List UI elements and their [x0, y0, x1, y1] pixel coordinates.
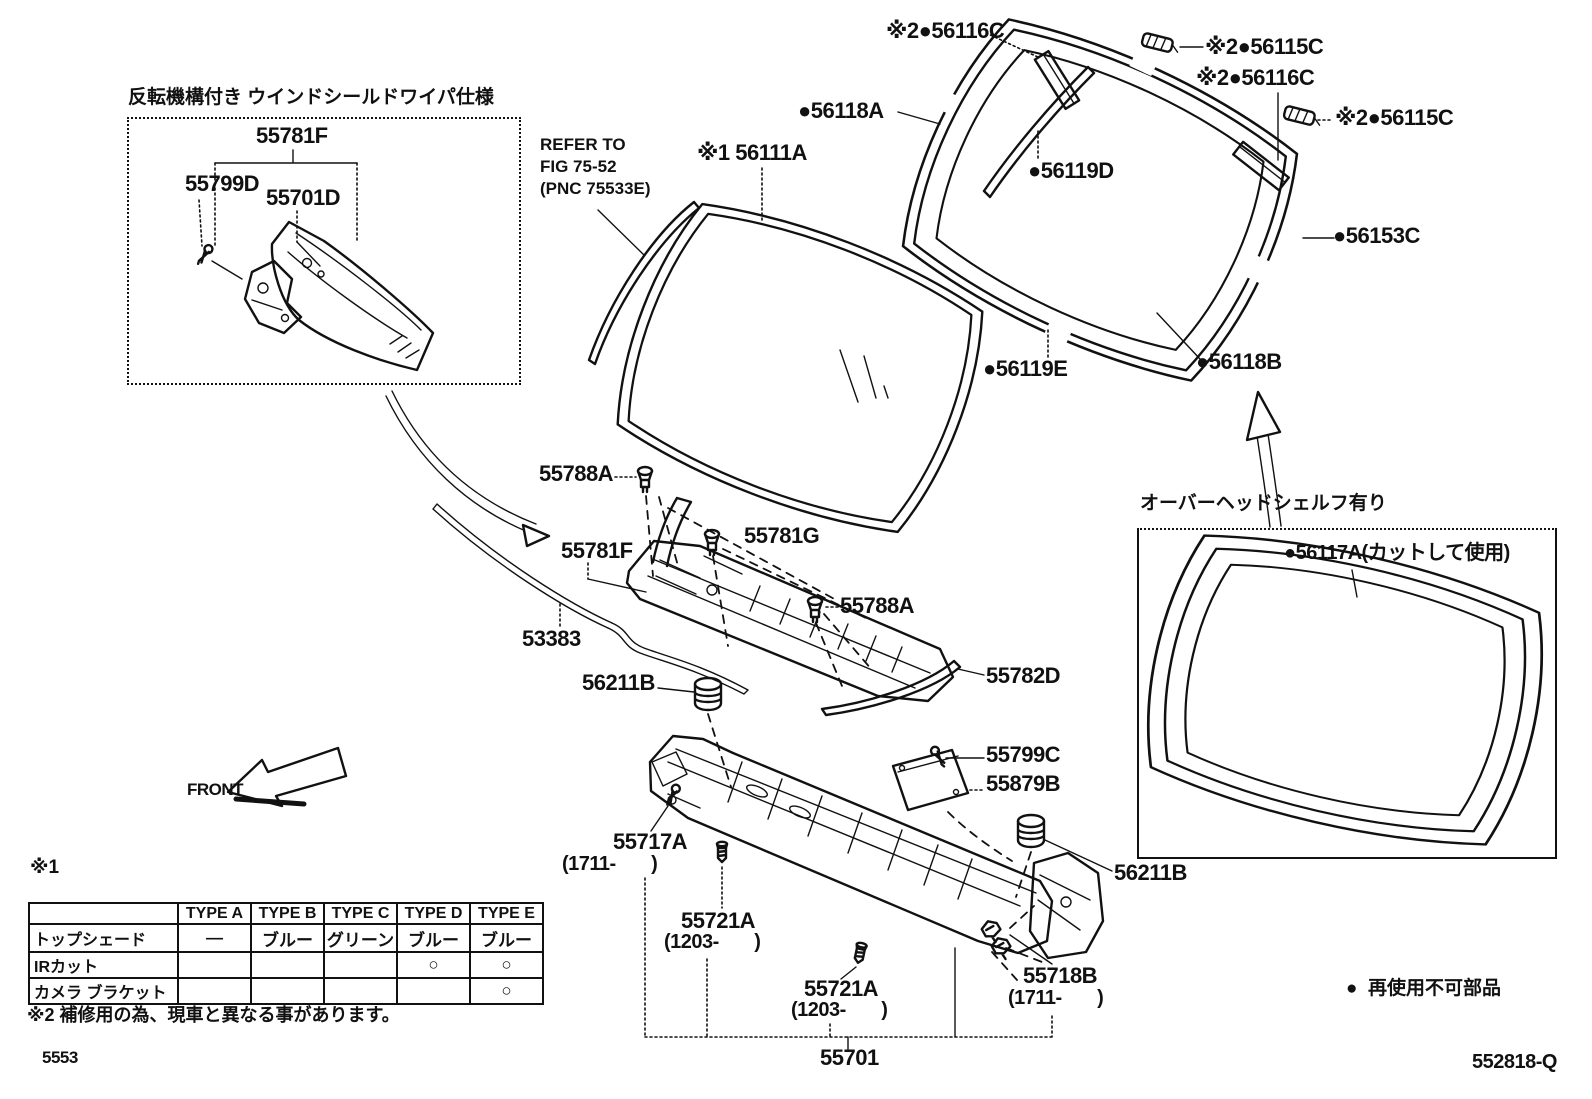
- cell: [324, 952, 397, 978]
- parts-diagram-page: 反転機構付き ウインドシールドワイパ仕様 55781F 55799D 55701…: [0, 0, 1592, 1099]
- row-label-camera-bracket: カメラ ブラケット: [29, 978, 178, 1004]
- part-label-55721a-1-date: (1203- ): [664, 932, 760, 953]
- note1-mark: ※1: [30, 858, 59, 878]
- cell: ブルー: [470, 924, 543, 952]
- cell: ○: [470, 978, 543, 1004]
- part-label-55717a: 55717A: [613, 830, 687, 853]
- table-row: カメラ ブラケット ○: [29, 978, 543, 1004]
- part-label-55701d: 55701D: [266, 186, 340, 209]
- wiper-box-pointer-arrow: [386, 391, 549, 546]
- cell: ―: [178, 924, 251, 952]
- part-label-56118b: ●56118B: [1196, 350, 1282, 373]
- cell: グリーン: [324, 924, 397, 952]
- windshield-glass-56111a: [589, 182, 1005, 554]
- part-label-55788a-1: 55788A: [539, 462, 613, 485]
- part-label-55788a-2: 55788A: [840, 594, 914, 617]
- table-header-type-e: TYPE E: [470, 903, 543, 924]
- part-label-55701: 55701: [820, 1046, 879, 1069]
- type-spec-table: TYPE A TYPE B TYPE C TYPE D TYPE E トップシェ…: [28, 902, 544, 1005]
- part-label-56111a: ※1 56111A: [697, 141, 807, 164]
- table-row: IRカット ○ ○: [29, 952, 543, 978]
- part-label-56116c-1: ※2●56116C: [886, 19, 1004, 42]
- cell: [178, 978, 251, 1004]
- part-label-55781g: 55781G: [744, 524, 819, 547]
- part-label-55721a-2: 55721A: [804, 977, 878, 1000]
- fastener-icons: [638, 467, 1044, 964]
- part-label-55781f-box: 55781F: [256, 124, 328, 147]
- table-row: トップシェード ― ブルー グリーン ブルー ブルー: [29, 924, 543, 952]
- front-arrow-icon: [228, 748, 346, 806]
- table-header-row: TYPE A TYPE B TYPE C TYPE D TYPE E: [29, 903, 543, 924]
- part-label-55799c: 55799C: [986, 743, 1060, 766]
- shelf-box-title: オーバーヘッドシェルフ有り: [1140, 494, 1387, 514]
- part-label-56119d: ●56119D: [1028, 159, 1114, 182]
- part-label-56117a: ●56117A(カットして使用): [1284, 543, 1510, 564]
- part-label-56119e: ●56119E: [983, 357, 1067, 380]
- part-label-55781f-mid: 55781F: [561, 539, 633, 562]
- cell: [251, 952, 324, 978]
- cell: [178, 952, 251, 978]
- part-label-55721a-2-date: (1203- ): [791, 1000, 887, 1021]
- shelf-weatherstrip-56117a: [1127, 392, 1563, 865]
- doc-code: 552818-Q: [1472, 1052, 1557, 1073]
- part-label-56153c: ●56153C: [1333, 224, 1420, 247]
- table-header-blank: [29, 903, 178, 924]
- part-label-56118a: ●56118A: [798, 99, 884, 122]
- cell: [251, 978, 324, 1004]
- refer-note: REFER TOFIG 75-52(PNC 75533E): [540, 134, 651, 200]
- table-header-type-d: TYPE D: [397, 903, 470, 924]
- wiper-box-title: 反転機構付き ウインドシールドワイパ仕様: [128, 88, 494, 108]
- part-label-56115c-2: ※2●56115C: [1335, 106, 1453, 129]
- page-code: 5553: [42, 1049, 78, 1067]
- part-label-55718b: 55718B: [1023, 964, 1097, 987]
- table-header-type-b: TYPE B: [251, 903, 324, 924]
- note2-text: ※2 補修用の為、現車と異なる事があります。: [27, 1006, 400, 1025]
- part-label-53383: 53383: [522, 627, 581, 650]
- cell: ブルー: [397, 924, 470, 952]
- table-header-type-a: TYPE A: [178, 903, 251, 924]
- front-label: FRONT: [187, 781, 243, 799]
- table-header-type-c: TYPE C: [324, 903, 397, 924]
- row-label-ircut: IRカット: [29, 952, 178, 978]
- molding-53383: [433, 504, 748, 694]
- cell: [324, 978, 397, 1004]
- part-label-56211b-right: 56211B: [1114, 861, 1187, 884]
- part-label-56115c-1: ※2●56115C: [1205, 35, 1323, 58]
- part-label-56116c-2: ※2●56116C: [1196, 66, 1314, 89]
- row-label-topshade: トップシェード: [29, 924, 178, 952]
- cell: ○: [397, 952, 470, 978]
- part-label-55718b-date: (1711- ): [1008, 988, 1103, 1009]
- reuse-legend: ● 再使用不可部品: [1346, 979, 1501, 999]
- part-label-56211b-left: 56211B: [582, 671, 655, 694]
- cell: ○: [470, 952, 543, 978]
- cell: ブルー: [251, 924, 324, 952]
- cell: [397, 978, 470, 1004]
- part-label-55721a-1: 55721A: [681, 909, 755, 932]
- part-label-55879b: 55879B: [986, 772, 1060, 795]
- part-label-55799d: 55799D: [185, 172, 259, 195]
- part-label-55717a-date: (1711- ): [562, 854, 657, 875]
- part-label-55782d: 55782D: [986, 664, 1060, 687]
